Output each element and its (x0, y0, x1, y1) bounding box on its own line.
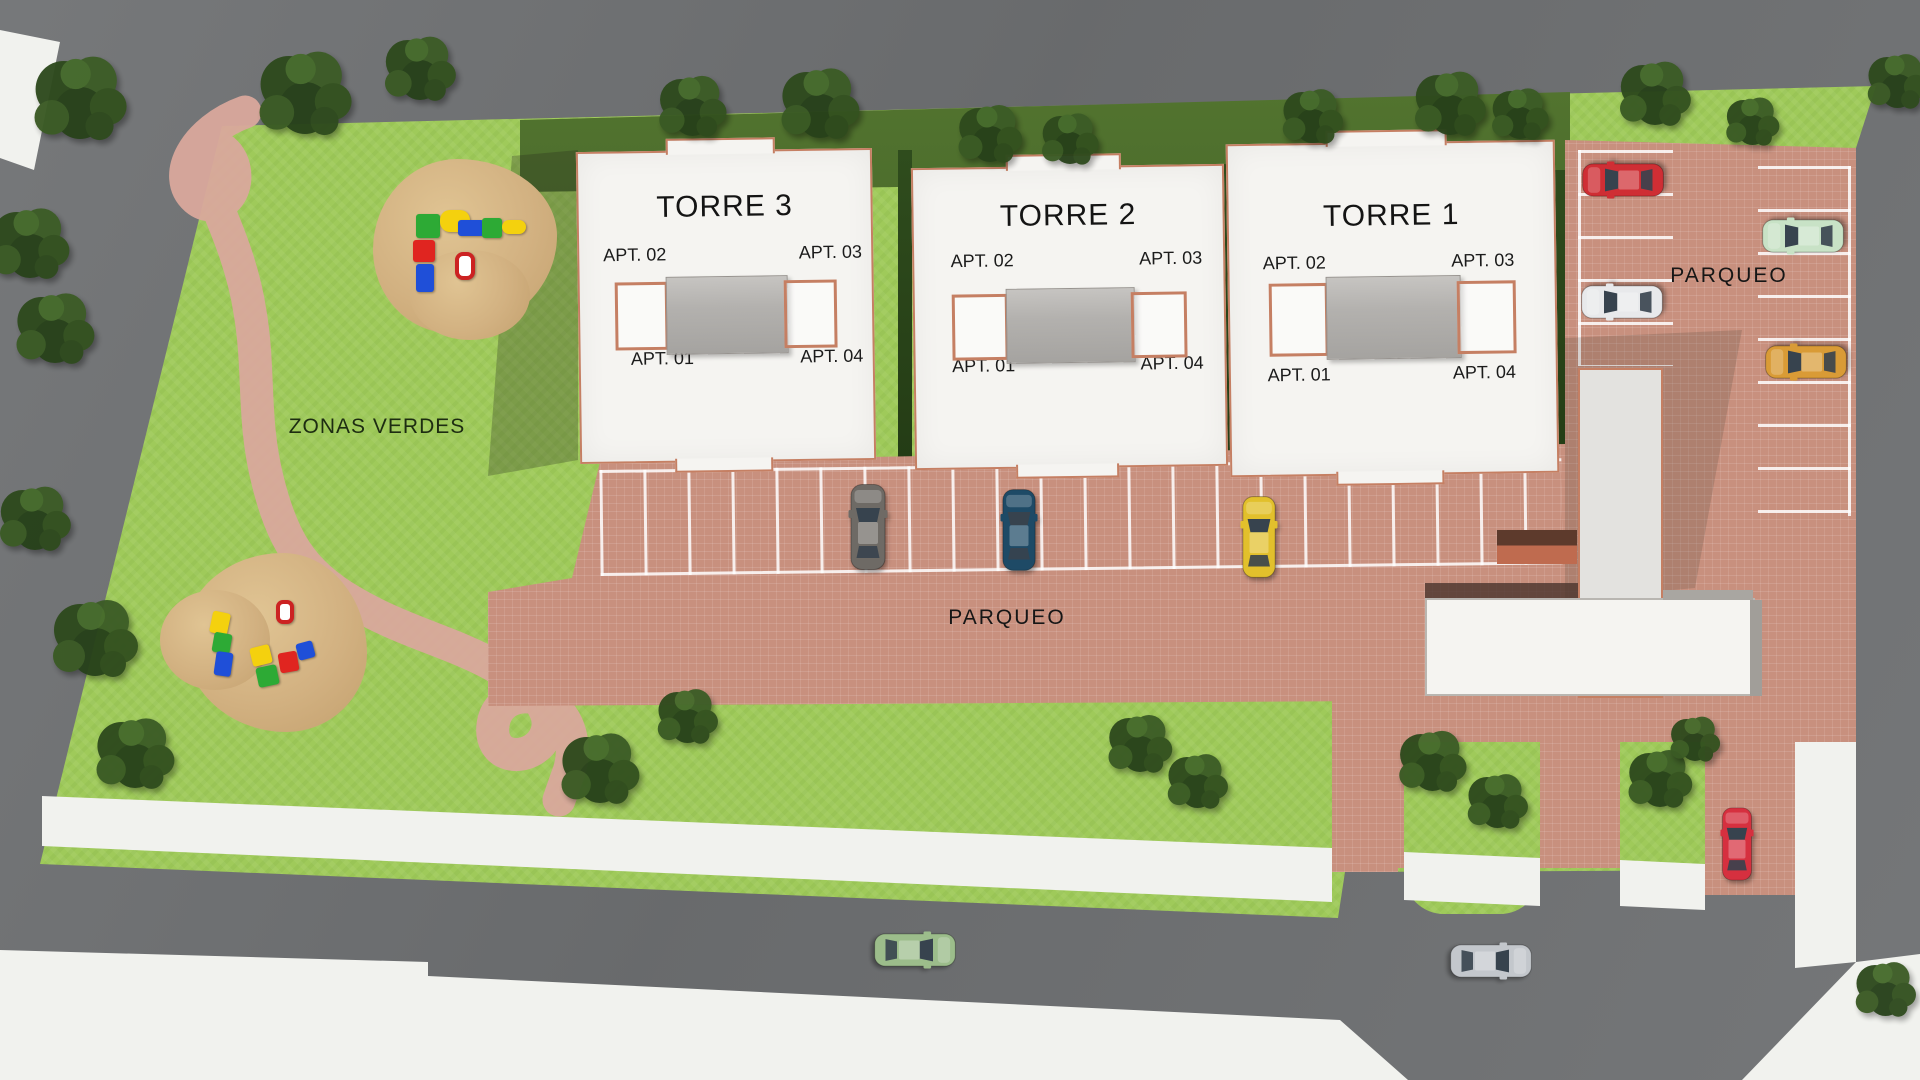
clubhouse-roof-edge (1663, 590, 1753, 600)
tree (0, 190, 85, 300)
suv-gray (848, 481, 888, 573)
core-box (783, 280, 837, 348)
sedan-yellow (1240, 493, 1278, 581)
label-zonas-verdes: ZONAS VERDES (289, 415, 466, 439)
site-plan: TORRE 3 APT. 02 APT. 03 APT. 01 APT. 04 … (0, 0, 1920, 1080)
stair-canopy (1497, 530, 1577, 564)
apt-label: APT. 01 (1268, 365, 1331, 387)
car-white (1578, 283, 1666, 321)
tower-torre-3: TORRE 3 APT. 02 APT. 03 APT. 01 APT. 04 (576, 148, 876, 464)
car-green (871, 931, 959, 969)
core-box (1456, 280, 1516, 353)
core-box (952, 294, 1009, 360)
tree (370, 20, 470, 120)
clubhouse-roof-edge (1750, 600, 1762, 696)
play-block (276, 600, 294, 624)
car-red-curbside (1720, 803, 1754, 885)
elevator-core (1269, 280, 1517, 356)
apt-label: APT. 02 (603, 244, 666, 266)
apt-label: APT. 03 (1451, 250, 1514, 272)
core-block (1006, 287, 1136, 364)
car-red (1579, 161, 1667, 199)
roof-tab (676, 457, 774, 472)
core-box (1269, 283, 1329, 356)
play-block (416, 264, 434, 292)
tower-torre-1: TORRE 1 APT. 02 APT. 03 APT. 01 APT. 04 (1226, 140, 1560, 478)
tower-title: TORRE 2 (1000, 198, 1137, 234)
play-block (413, 240, 435, 262)
label-parqueo-central: PARQUEO (948, 606, 1065, 630)
roof-tab (1336, 470, 1444, 486)
play-block (213, 651, 233, 677)
tower-title: TORRE 1 (1323, 198, 1460, 234)
roof-tab (1005, 153, 1120, 171)
apt-label: APT. 02 (951, 251, 1014, 273)
elevator-core (615, 280, 838, 351)
tower-title: TORRE 3 (656, 189, 793, 225)
core-box (615, 282, 669, 350)
roof-tab (1325, 129, 1446, 147)
hedge-gap (898, 150, 912, 462)
apt-label: APT. 03 (1139, 248, 1202, 270)
play-block (255, 664, 280, 688)
label-parqueo-east: PARQUEO (1670, 264, 1787, 288)
play-block (277, 651, 299, 674)
car-mint (1759, 217, 1847, 255)
apt-label: APT. 02 (1263, 253, 1326, 275)
roof-tab (1016, 463, 1119, 478)
clubhouse (1425, 598, 1755, 696)
roof-tab (665, 137, 774, 155)
core-box (1130, 292, 1187, 358)
car-orange (1762, 343, 1850, 381)
elevator-core (952, 292, 1188, 361)
tree (0, 470, 85, 570)
tower-torre-2: TORRE 2 APT. 02 APT. 03 APT. 01 APT. 04 (911, 164, 1228, 470)
sedan-blue (1000, 486, 1038, 574)
tree (0, 275, 110, 385)
core-block (666, 275, 789, 355)
play-block (502, 220, 526, 234)
play-block (458, 220, 484, 236)
apt-label: APT. 03 (799, 241, 862, 263)
play-block (482, 218, 502, 238)
apt-label: APT. 04 (1453, 362, 1516, 384)
core-block (1325, 275, 1462, 360)
play-block (455, 252, 475, 280)
sedan-silver (1447, 942, 1535, 980)
play-block (416, 214, 440, 238)
apt-label: APT. 04 (800, 346, 863, 368)
